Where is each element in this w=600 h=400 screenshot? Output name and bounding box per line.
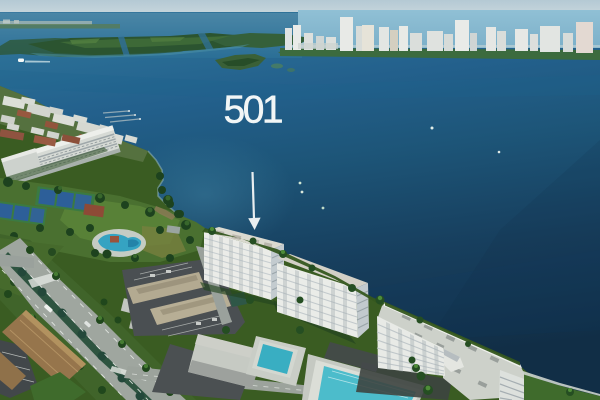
svg-text:501: 501	[224, 89, 282, 132]
